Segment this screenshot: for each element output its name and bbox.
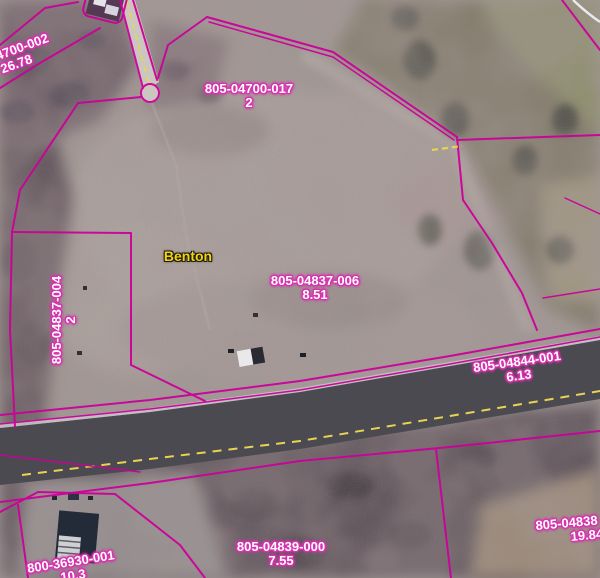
parcel-area: 19.84: [570, 527, 600, 544]
parcel-area: 2: [205, 96, 293, 110]
parcel-label-805-04837-006: 805-04837-006 8.51: [271, 274, 359, 302]
parcel-label-805-04700-017: 805-04700-017 2: [205, 82, 293, 110]
parcel-area: 7.55: [237, 554, 325, 568]
parcel-label-805-04839-000: 805-04839-000 7.55: [237, 540, 325, 568]
parcel-label-805-04837-004: 805-04837-004 2: [50, 276, 78, 364]
map-canvas[interactable]: 4700-002 26.78 805-04700-017 2 Benton 80…: [0, 0, 600, 578]
parcel-id: 805-04839-000: [237, 539, 325, 554]
parcel-id: 805-04837-004: [49, 276, 64, 364]
place-label-benton: Benton: [164, 248, 212, 264]
parcel-area: 8.51: [271, 288, 359, 302]
parcel-label-805-04838: 805-04838 19.84: [535, 513, 600, 547]
parcel-id: 805-04700-017: [205, 81, 293, 96]
parcel-id: 805-04837-006: [271, 273, 359, 288]
parcel-area: 2: [64, 276, 78, 364]
